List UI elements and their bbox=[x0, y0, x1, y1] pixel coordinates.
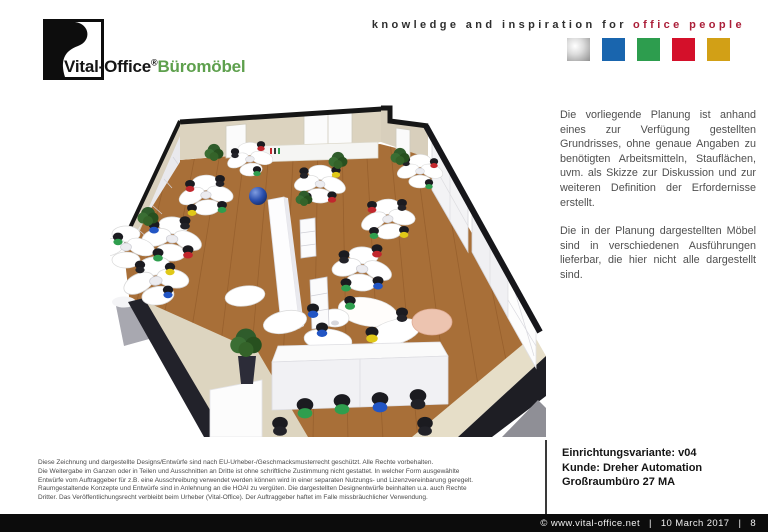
brand-color-squares bbox=[567, 38, 730, 61]
logo-bueromoebel: Büromöbel bbox=[157, 57, 245, 76]
tagline: knowledge and inspiration foroffice peop… bbox=[372, 19, 745, 31]
footer-date: 10 March 2017 bbox=[661, 518, 730, 529]
color-square-red bbox=[672, 38, 695, 61]
color-square-gold bbox=[707, 38, 730, 61]
footer-separator: | bbox=[738, 518, 741, 529]
legal-line: Raumgestaltende Konzepte und Entwürfe si… bbox=[38, 485, 546, 494]
legal-line: Die Weitergabe im Ganzen oder in Teilen … bbox=[38, 468, 546, 477]
slide-page: Vital-Office®Büromöbel knowledge and ins… bbox=[0, 0, 768, 532]
footer-bar: © www.vital-office.net | 10 March 2017 |… bbox=[0, 514, 768, 532]
footer-copyright: © www.vital-office.net bbox=[540, 518, 640, 529]
project-customer: Kunde: Dreher Automation bbox=[562, 461, 702, 476]
footer-page-number: 8 bbox=[750, 518, 756, 529]
legal-line: Entwürfe vom Auftraggeber für z.B. eine … bbox=[38, 477, 546, 486]
description-paragraph-1: Die vorliegende Planung ist anhand eines… bbox=[560, 108, 756, 210]
tagline-black: knowledge and inspiration for bbox=[372, 19, 627, 31]
vertical-divider bbox=[545, 440, 547, 514]
project-room: Großraumbüro 27 MA bbox=[562, 475, 702, 490]
color-square-silver bbox=[567, 38, 590, 61]
legal-line: Diese Zeichnung und dargestellte Designs… bbox=[38, 459, 546, 468]
tagline-red: office people bbox=[633, 19, 745, 31]
color-square-blue bbox=[602, 38, 625, 61]
description-paragraph-2: Die in der Planung dargestellten Möbel s… bbox=[560, 224, 756, 282]
legal-notice: Diese Zeichnung und dargestellte Designs… bbox=[38, 459, 546, 503]
office-floorplan-rendering bbox=[110, 100, 546, 437]
footer-separator: | bbox=[649, 518, 652, 529]
legal-line: Dritter. Das Veröffentlichungsrecht verb… bbox=[38, 494, 546, 503]
project-info: Einrichtungsvariante: v04 Kunde: Dreher … bbox=[562, 446, 702, 490]
logo-wordmark: Vital-Office®Büromöbel bbox=[64, 57, 245, 77]
logo-office: Office bbox=[104, 57, 151, 76]
logo-vital: Vital- bbox=[64, 57, 104, 76]
color-square-green bbox=[637, 38, 660, 61]
project-variant: Einrichtungsvariante: v04 bbox=[562, 446, 702, 461]
planning-description: Die vorliegende Planung ist anhand eines… bbox=[560, 108, 756, 283]
